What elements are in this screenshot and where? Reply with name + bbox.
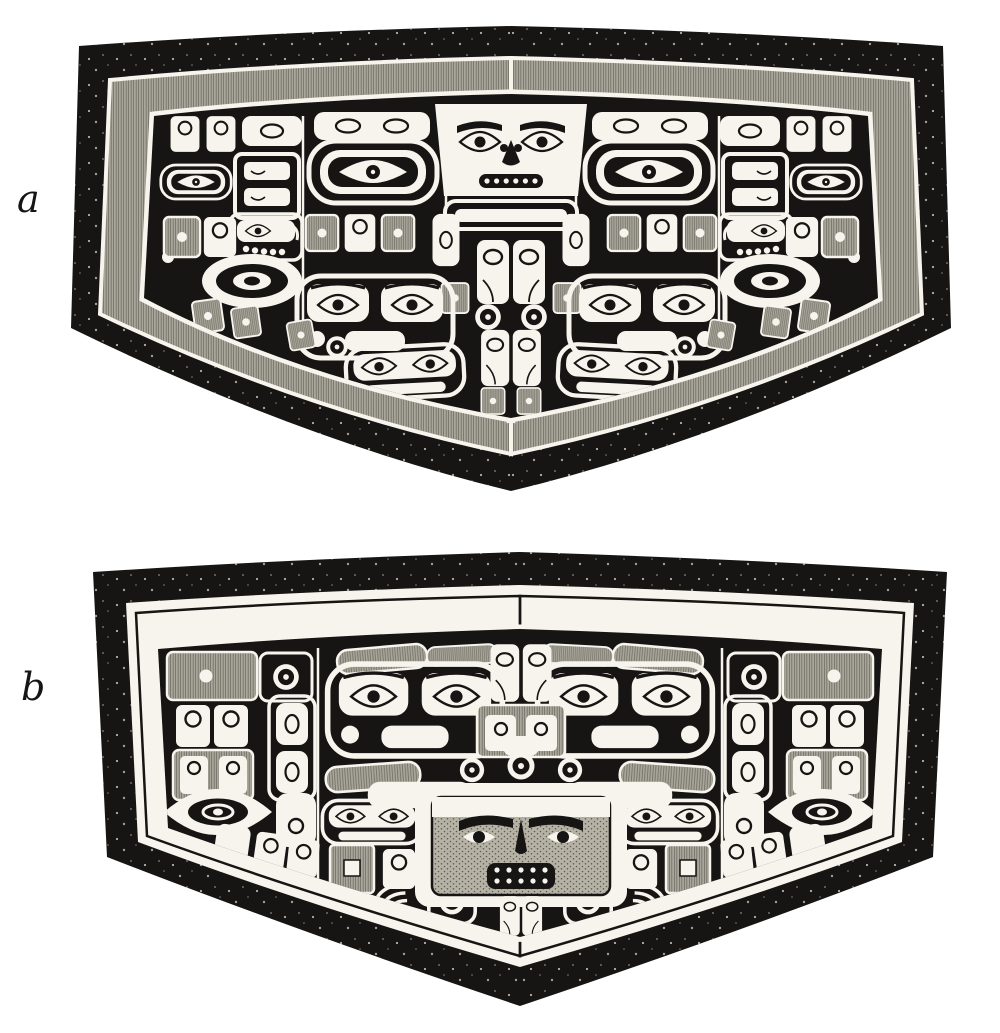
stipple-box-motif [286, 319, 316, 351]
box-circle-motif [383, 849, 415, 889]
box-circle-motif [345, 214, 376, 252]
top-center-face [435, 104, 587, 196]
stipple-box-motif [231, 305, 262, 338]
blanket-b [93, 552, 947, 1006]
stipple-panel-motif [167, 652, 257, 700]
box-circle-motif [171, 116, 200, 152]
ring-motif [460, 758, 484, 782]
stipple-box-motif [481, 388, 504, 414]
chilkat-blankets-illustration [0, 0, 1000, 1033]
stipple-box-motif [306, 215, 338, 251]
ring-motif [558, 758, 582, 782]
ring-motif [475, 304, 501, 330]
ring-motif [326, 336, 348, 358]
bar-oval-motif [242, 116, 302, 146]
engraving-plate: a b [0, 0, 1000, 1033]
bottom-center-face [415, 783, 627, 907]
stipple-box-motif [164, 217, 200, 257]
ring-motif [521, 304, 547, 330]
box-circle-motif [207, 116, 236, 152]
double-oval-bar-motif [314, 112, 430, 140]
blanket-a [71, 26, 951, 491]
stipple-box-motif [517, 388, 540, 414]
stipple-box-motif [382, 215, 414, 251]
